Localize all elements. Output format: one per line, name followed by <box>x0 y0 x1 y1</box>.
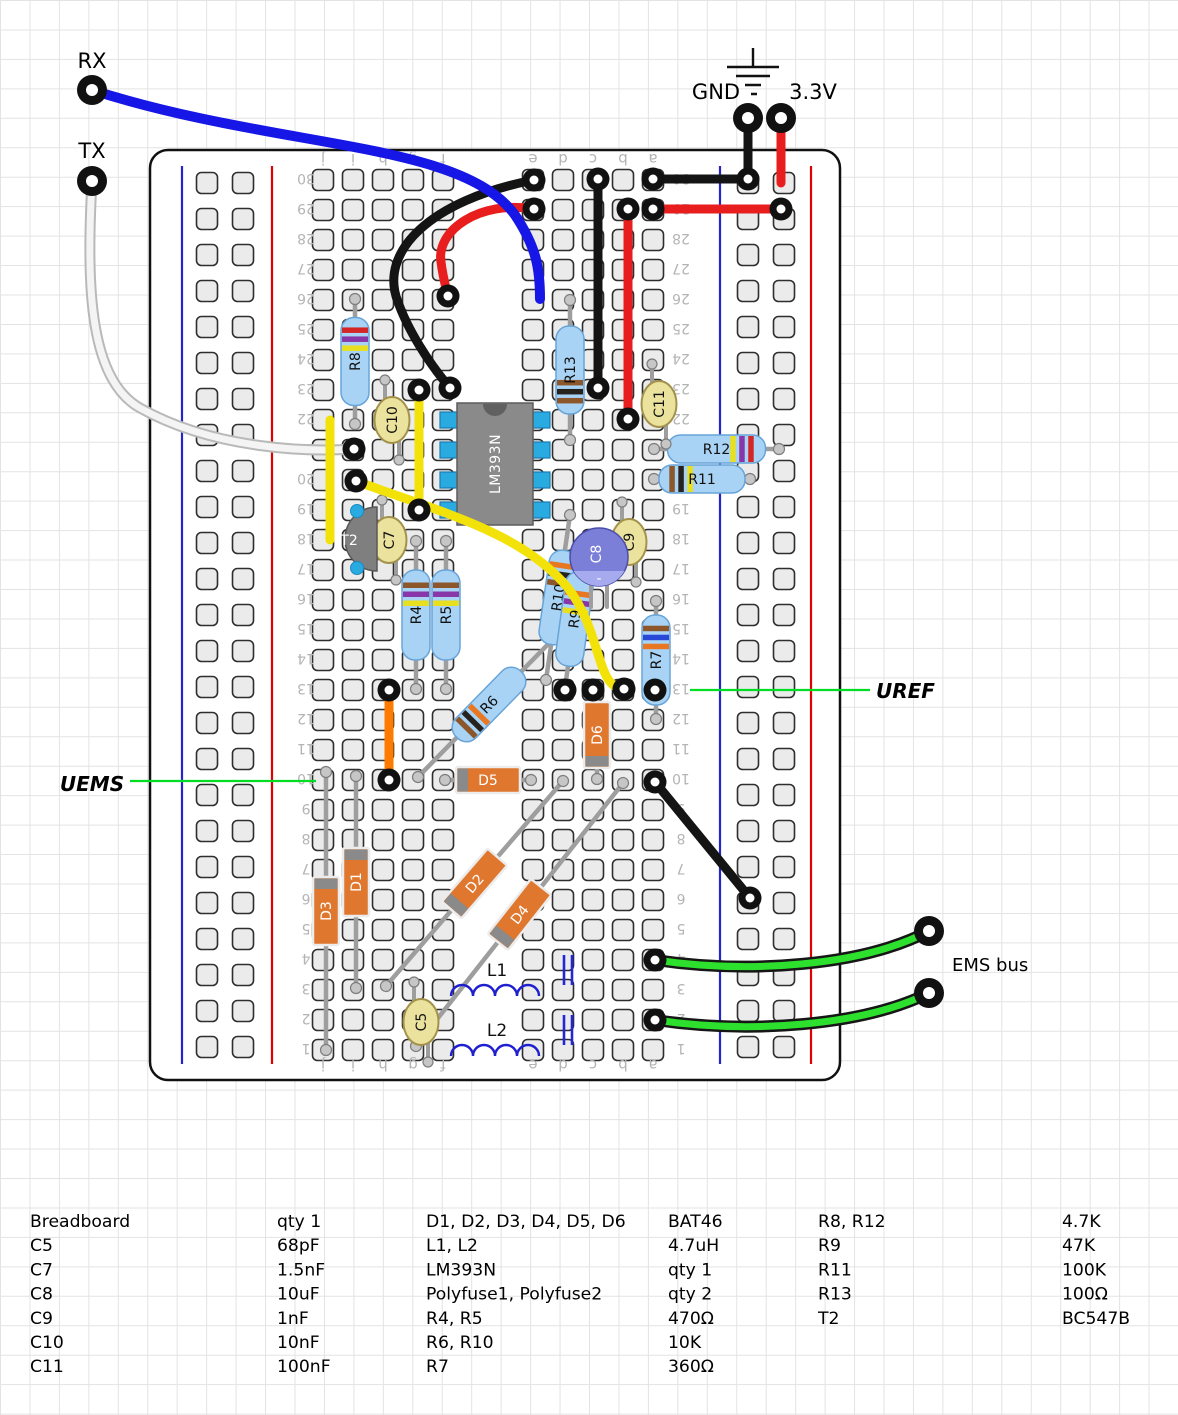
diode-label: D6 <box>590 725 606 745</box>
bom-item-value: 100Ω <box>1062 1285 1108 1305</box>
breadboard-diagram-page: 1122334455667788991010111112121313141415… <box>0 0 1178 1415</box>
lead-end <box>350 294 361 305</box>
rail-hole <box>233 821 254 842</box>
breadboard-hole-f8 <box>433 830 454 851</box>
bom-item-name: C8 <box>30 1285 53 1305</box>
rail-hole <box>738 641 759 662</box>
connection-ring-hole <box>385 686 394 695</box>
rail-hole <box>197 821 218 842</box>
bom-item-name: R13 <box>818 1285 852 1305</box>
resistor-label: R11 <box>688 472 716 488</box>
connection-ring-hole <box>651 778 660 787</box>
row-number: 3 <box>302 980 311 996</box>
breadboard-hole-d29 <box>553 200 574 221</box>
rail-hole <box>774 749 795 770</box>
connection-ring-hole <box>594 384 603 393</box>
rail-hole <box>738 713 759 734</box>
rail-hole <box>774 533 795 554</box>
rail-hole <box>738 749 759 770</box>
bom-item-name: R7 <box>426 1357 449 1377</box>
breadboard-hole-a17 <box>643 560 664 581</box>
tx-pin[interactable] <box>77 166 107 196</box>
resistor-band <box>557 389 583 395</box>
rail-hole <box>233 281 254 302</box>
breadboard-hole-i13 <box>343 680 364 701</box>
ic-pin <box>532 442 550 458</box>
breadboard-hole-b9 <box>613 800 634 821</box>
breadboard-hole-c4 <box>583 950 604 971</box>
row-number: 19 <box>672 500 690 516</box>
bom-item-name: C11 <box>30 1357 64 1377</box>
rail-hole <box>233 461 254 482</box>
rail-hole <box>774 713 795 734</box>
rail-hole <box>197 281 218 302</box>
breadboard-hole-h8 <box>373 830 394 851</box>
rail-hole <box>774 929 795 950</box>
breadboard-hole-d12 <box>553 710 574 731</box>
breadboard-hole-b15 <box>613 620 634 641</box>
rail-hole <box>233 929 254 950</box>
row-number: 11 <box>297 740 315 756</box>
breadboard-hole-c20 <box>583 470 604 491</box>
connection-ring-hole <box>777 205 786 214</box>
rail-hole <box>197 677 218 698</box>
rail-hole <box>738 857 759 878</box>
breadboard-hole-e11 <box>523 740 544 761</box>
rail-hole <box>738 281 759 302</box>
rx-label: RX <box>78 49 107 73</box>
rail-hole <box>233 173 254 194</box>
breadboard-hole-g11 <box>403 740 424 761</box>
resistor-band <box>678 466 684 492</box>
breadboard-hole-a26 <box>643 290 664 311</box>
bom-item-name: C10 <box>30 1333 64 1353</box>
rail-hole <box>738 533 759 554</box>
bom-item-value: 1.5nF <box>277 1260 325 1280</box>
rail-hole <box>738 785 759 806</box>
ic-pin <box>532 502 550 518</box>
breadboard-hole-c21 <box>583 440 604 461</box>
rail-hole <box>774 245 795 266</box>
ic-pin <box>440 472 458 488</box>
breadboard-hole-g27 <box>403 260 424 281</box>
breadboard-hole-f7 <box>433 860 454 881</box>
rail-hole <box>197 173 218 194</box>
breadboard-hole-e2 <box>523 1010 544 1031</box>
column-letter-bottom: f <box>440 1056 446 1074</box>
row-number: 3 <box>677 980 686 996</box>
rail-hole <box>233 1001 254 1022</box>
ems-bus-pin-2-hole <box>923 987 935 999</box>
breadboard-hole-h7 <box>373 860 394 881</box>
breadboard-hole-i11 <box>343 740 364 761</box>
breadboard-hole-i12 <box>343 710 364 731</box>
breadboard-hole-a25 <box>643 320 664 341</box>
rail-hole <box>233 1037 254 1058</box>
lead-end <box>351 983 362 994</box>
bom-item-name: R4, R5 <box>426 1309 483 1329</box>
capacitor-label: C8 <box>589 545 605 564</box>
bom-item-name: C5 <box>30 1236 53 1256</box>
row-number: 17 <box>297 560 315 576</box>
diode-cathode-stripe <box>458 769 469 792</box>
breadboard-hole-i14 <box>343 650 364 671</box>
breadboard-hole-d30 <box>553 170 574 191</box>
capacitor-label: C5 <box>414 1013 430 1032</box>
rail-hole <box>233 497 254 518</box>
rail-hole <box>233 533 254 554</box>
lead-end <box>394 455 404 465</box>
rail-hole <box>197 749 218 770</box>
row-number: 17 <box>672 560 690 576</box>
bom-item-name: Breadboard <box>30 1212 130 1232</box>
breadboard-hole-c5 <box>583 920 604 941</box>
breadboard-hole-b21 <box>613 440 634 461</box>
breadboard-hole-i5 <box>343 920 364 941</box>
breadboard-hole-c7 <box>583 860 604 881</box>
breadboard-hole-a3 <box>643 980 664 1001</box>
row-number: 18 <box>297 530 315 546</box>
row-number: 14 <box>297 650 315 666</box>
rail-hole <box>197 713 218 734</box>
bom-item-name: C7 <box>30 1260 53 1280</box>
connection-ring-hole <box>651 686 660 695</box>
connection-ring-hole <box>415 506 424 515</box>
bom-item-value: 10uF <box>277 1285 320 1305</box>
row-number: 14 <box>672 650 690 666</box>
breadboard-hole-d6 <box>553 890 574 911</box>
breadboard-hole-d18 <box>553 530 574 551</box>
rail-hole <box>197 317 218 338</box>
lead-end <box>391 575 401 585</box>
row-number: 30 <box>297 170 315 186</box>
row-number: 7 <box>677 860 686 876</box>
ic-label: LM393N <box>488 434 504 494</box>
row-number: 13 <box>672 680 690 696</box>
rail-hole <box>197 1037 218 1058</box>
rail-hole <box>774 605 795 626</box>
resistor-band <box>433 592 459 598</box>
row-number: 26 <box>672 290 690 306</box>
connection-ring-hole <box>561 686 570 695</box>
breadboard-hole-h9 <box>373 800 394 821</box>
lead-end <box>774 444 785 455</box>
bom-item-value: 47K <box>1062 1236 1096 1256</box>
row-number: 6 <box>676 890 685 906</box>
breadboard-hole-h26 <box>373 290 394 311</box>
lead-end <box>565 435 576 446</box>
breadboard-hole-h24 <box>373 350 394 371</box>
breadboard-hole-a6 <box>643 890 664 911</box>
lead-end <box>380 375 390 385</box>
breadboard-hole-e24 <box>523 350 544 371</box>
breadboard-hole-h14 <box>373 650 394 671</box>
breadboard-hole-b3 <box>613 980 634 1001</box>
rail-hole <box>233 569 254 590</box>
row-number: 15 <box>672 620 690 636</box>
lead-end <box>565 295 576 306</box>
breadboard-hole-b16 <box>613 590 634 611</box>
ems-bus-pin-2[interactable] <box>914 978 944 1008</box>
bom-item-name: R9 <box>818 1236 841 1256</box>
column-letter-top: i <box>351 150 355 168</box>
bom-item-name: R11 <box>818 1260 852 1280</box>
breadboard-hole-g5 <box>403 920 424 941</box>
row-number: 5 <box>677 920 686 936</box>
rail-hole <box>738 353 759 374</box>
rail-hole <box>233 857 254 878</box>
column-letter-bottom: c <box>589 1056 597 1074</box>
breadboard-hole-e7 <box>523 860 544 881</box>
rail-hole <box>774 425 795 446</box>
breadboard-hole-d20 <box>553 470 574 491</box>
diode-label: D5 <box>478 773 498 789</box>
breadboard-hole-b11 <box>613 740 634 761</box>
row-number: 15 <box>297 620 315 636</box>
column-letter-top: j <box>321 150 326 168</box>
row-number: 25 <box>672 320 690 336</box>
lead-end <box>651 596 662 607</box>
rail-hole <box>738 821 759 842</box>
connection-ring-hole <box>446 384 455 393</box>
bom-item-value: BC547B <box>1062 1309 1130 1329</box>
row-number: 20 <box>297 470 315 486</box>
breadboard-hole-i2 <box>343 1010 364 1031</box>
bom-item-value: qty 1 <box>668 1260 712 1280</box>
row-number: 18 <box>672 530 690 546</box>
rail-hole <box>197 965 218 986</box>
rail-hole <box>774 389 795 410</box>
lead-end <box>592 774 603 785</box>
lead-end <box>526 775 537 786</box>
uref-label: UREF <box>876 679 935 703</box>
gnd-label: GND <box>692 80 740 104</box>
rail-hole <box>233 965 254 986</box>
resistor-band <box>433 601 459 607</box>
column-letter-top: d <box>558 150 568 168</box>
column-letter-bottom: h <box>378 1056 388 1074</box>
breadboard-hole-c6 <box>583 890 604 911</box>
resistor-R11[interactable]: R11 <box>649 465 756 493</box>
rail-hole <box>197 389 218 410</box>
bom-item-value: 100K <box>1062 1260 1107 1280</box>
rail-hole <box>197 605 218 626</box>
row-number: 1 <box>677 1040 686 1056</box>
rail-hole <box>738 605 759 626</box>
breadboard-hole-e8 <box>523 830 544 851</box>
breadboard-hole-b20 <box>613 470 634 491</box>
ems-bus-pin-1[interactable] <box>914 916 944 946</box>
connection-ring-hole <box>444 292 453 301</box>
row-number: 10 <box>672 770 690 786</box>
row-number: 16 <box>297 590 315 606</box>
breadboard-hole-e4 <box>523 950 544 971</box>
row-number: 4 <box>301 950 310 966</box>
rail-hole <box>738 1037 759 1058</box>
breadboard-hole-b6 <box>613 890 634 911</box>
connection-ring-hole <box>415 386 424 395</box>
rail-hole <box>774 857 795 878</box>
resistor-band <box>643 635 669 641</box>
breadboard-hole-h5 <box>373 920 394 941</box>
bom-item-value: qty 1 <box>277 1212 321 1232</box>
lead-end <box>647 359 657 369</box>
breadboard-hole-b30 <box>613 170 634 191</box>
gnd-pin[interactable] <box>733 103 763 133</box>
rail-hole <box>774 569 795 590</box>
breadboard-hole-i15 <box>343 620 364 641</box>
breadboard-hole-d28 <box>553 230 574 251</box>
bom-item-value: 10K <box>668 1333 702 1353</box>
row-number: 27 <box>672 260 690 276</box>
parts-list: Breadboardqty 1C568pFC71.5nFC810uFC91nFC… <box>30 1212 1130 1377</box>
rail-hole <box>233 245 254 266</box>
transistor-leg <box>351 505 364 518</box>
row-number: 29 <box>297 200 315 216</box>
rail-hole <box>197 569 218 590</box>
breadboard-hole-g8 <box>403 830 424 851</box>
resistor-label: R7 <box>649 651 665 670</box>
breadboard-hole-h29 <box>373 200 394 221</box>
diagram-canvas: 1122334455667788991010111112121313141415… <box>0 0 1178 1415</box>
diode-cathode-stripe <box>315 879 338 890</box>
inductor-label: L1 <box>487 961 507 981</box>
connection-ring-hole <box>624 205 633 214</box>
rail-hole <box>774 1037 795 1058</box>
row-number: 8 <box>677 830 686 846</box>
rx-pin[interactable] <box>77 75 107 105</box>
row-number: 13 <box>297 680 315 696</box>
lead-end <box>411 684 422 695</box>
resistor-band <box>643 644 669 650</box>
breadboard-hole-h4 <box>373 950 394 971</box>
breadboard-hole-g30 <box>403 170 424 191</box>
resistor-band <box>403 583 429 589</box>
row-number: 8 <box>302 830 311 846</box>
row-number: 28 <box>672 230 690 246</box>
bom-item-value: 4.7K <box>1062 1212 1101 1232</box>
capacitor-label: C11 <box>652 390 668 418</box>
column-letter-bottom: a <box>648 1056 657 1074</box>
column-letter-top: c <box>589 150 597 168</box>
rail-hole <box>738 677 759 698</box>
rail-hole <box>233 209 254 230</box>
bom-item-value: 68pF <box>277 1236 320 1256</box>
row-number: 5 <box>302 920 311 936</box>
ic-LM393N[interactable]: LM393N <box>440 403 550 525</box>
rail-hole <box>738 1001 759 1022</box>
diode-cathode-stripe <box>345 850 368 861</box>
lead-end <box>441 684 452 695</box>
breadboard-hole-d11 <box>553 740 574 761</box>
breadboard-hole-a8 <box>643 830 664 851</box>
diode-label: D3 <box>319 901 335 921</box>
connection-ring-hole <box>649 175 658 184</box>
breadboard-hole-i28 <box>343 230 364 251</box>
tx-label: TX <box>77 139 105 163</box>
breadboard-hole-g12 <box>403 710 424 731</box>
capacitor-label: C10 <box>385 406 401 434</box>
row-number: 27 <box>297 260 315 276</box>
breadboard-hole-c3 <box>583 980 604 1001</box>
bom-item-name: T2 <box>817 1309 839 1329</box>
connection-ring-hole <box>620 685 629 694</box>
row-number: 12 <box>297 710 315 726</box>
bom-item-name: LM393N <box>426 1260 496 1280</box>
breadboard-hole-c22 <box>583 410 604 431</box>
rail-hole <box>738 569 759 590</box>
resistor-band <box>433 583 459 589</box>
connection-ring-hole <box>352 477 361 486</box>
breadboard-hole-e23 <box>523 380 544 401</box>
rail-hole <box>197 1001 218 1022</box>
row-number: 12 <box>672 710 690 726</box>
lead-end <box>745 474 756 485</box>
bom-item-value: BAT46 <box>668 1212 723 1232</box>
breadboard-hole-i27 <box>343 260 364 281</box>
row-number: 6 <box>301 890 310 906</box>
breadboard-hole-h25 <box>373 320 394 341</box>
column-letter-top: a <box>648 150 657 168</box>
ic-pin <box>532 472 550 488</box>
bom-item-value: 360Ω <box>668 1357 714 1377</box>
connection-ring-hole <box>649 205 658 214</box>
breadboard-hole-j2 <box>313 1010 334 1031</box>
breadboard-hole-f4 <box>433 950 454 971</box>
row-number: 24 <box>297 350 315 366</box>
bom-item-name: L1, L2 <box>426 1236 478 1256</box>
rail-hole <box>197 893 218 914</box>
row-number: 23 <box>297 380 315 396</box>
bom-item-name: R6, R10 <box>426 1333 494 1353</box>
resistor-band <box>730 436 736 462</box>
rail-hole <box>738 245 759 266</box>
column-letter-bottom: i <box>351 1056 355 1074</box>
uems-label: UEMS <box>60 772 124 796</box>
breadboard-hole-f25 <box>433 320 454 341</box>
rail-hole <box>774 785 795 806</box>
resistor-band <box>669 466 675 492</box>
resistor-band <box>342 327 368 333</box>
bom-item-name: C9 <box>30 1309 53 1329</box>
breadboard-hole-h2 <box>373 1010 394 1031</box>
resistor-label: R4 <box>409 606 425 625</box>
row-number: 9 <box>302 800 311 816</box>
breadboard-hole-f3 <box>433 980 454 1001</box>
column-letter-bottom: d <box>558 1056 568 1074</box>
breadboard-hole-b7 <box>613 860 634 881</box>
rail-hole <box>197 533 218 554</box>
rail-hole <box>233 605 254 626</box>
breadboard-hole-i30 <box>343 170 364 191</box>
ic-pin <box>440 412 458 428</box>
diode-label: D1 <box>349 872 365 892</box>
connection-ring-hole <box>350 445 359 454</box>
inductor-label: L2 <box>487 1021 507 1041</box>
column-letter-bottom: j <box>321 1056 326 1074</box>
v33-pin[interactable] <box>766 103 796 133</box>
breadboard-hole-e3 <box>523 980 544 1001</box>
connection-ring-hole <box>589 686 598 695</box>
breadboard-hole-h16 <box>373 590 394 611</box>
row-number: 10 <box>297 770 315 786</box>
connection-ring-hole <box>385 776 394 785</box>
lead-end <box>440 775 451 786</box>
breadboard-hole-b14 <box>613 650 634 671</box>
row-number: 1 <box>302 1040 311 1056</box>
connection-ring-hole <box>594 175 603 184</box>
lead-end <box>661 439 671 449</box>
